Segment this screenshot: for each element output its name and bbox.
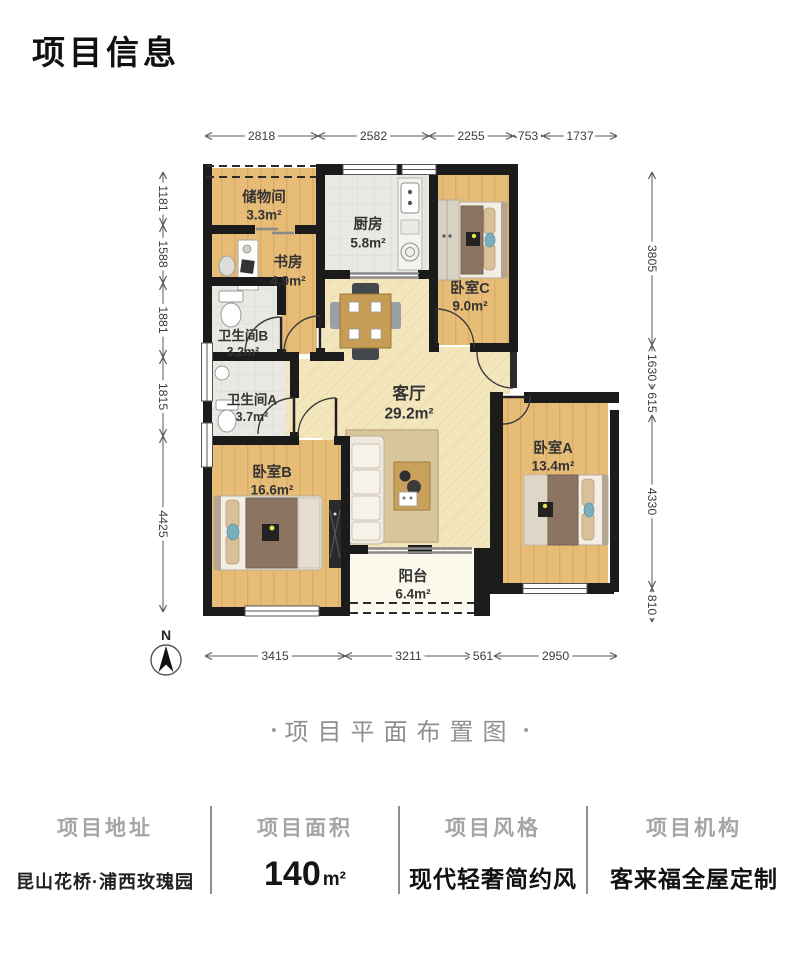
window-kitchen-icon [343, 165, 397, 175]
window-kitchen2-icon [402, 165, 436, 175]
dim-label: 753 [518, 129, 539, 143]
room-label-storage: 储物间 [242, 188, 286, 206]
room-area-living-room: 29.2m² [384, 406, 433, 423]
plan-caption: •项目平面布置图• [0, 712, 800, 747]
room-area-bathroom-b: 3.2m² [227, 345, 260, 359]
svg-text:N: N [161, 627, 171, 643]
dim-label: 1181 [156, 185, 170, 212]
caption-text: 项目平面布置图 [285, 719, 516, 746]
address-value: 昆山花桥·浦西玫瑰园 [16, 868, 194, 894]
floor-plan: N 28182582225575317371181158818811815442… [0, 0, 800, 700]
room-area-study: 4.9m² [270, 274, 306, 289]
address-label: 项目地址 [57, 812, 153, 842]
dim-label: 2255 [457, 129, 485, 143]
room-area-balcony: 6.4m² [395, 587, 431, 602]
style-value: 现代轻奢简约风 [409, 860, 577, 894]
dim-label: 1815 [156, 383, 170, 411]
bed-a-icon [524, 475, 608, 545]
toilet-b-icon [219, 291, 243, 327]
room-label-bedroom-a: 卧室A [533, 439, 573, 457]
dim-label: 1630 [645, 354, 659, 382]
dim-label: 3415 [261, 649, 289, 663]
organization-value: 客来福全屋定制 [610, 860, 778, 894]
area-value: 140m² [264, 855, 346, 894]
room-label-living-room: 客厅 [392, 383, 427, 403]
caption-left-dot: • [271, 722, 276, 739]
floor-plan-container: N 28182582225575317371181158818811815442… [0, 0, 800, 705]
organization-label: 项目机构 [646, 812, 742, 842]
chair-icon [219, 256, 235, 276]
sofa-icon [348, 436, 384, 544]
project-info-bar: 项目地址 昆山花桥·浦西玫瑰园 项目面积 140m² 项目风格 现代轻奢简约风 … [0, 806, 800, 898]
dim-label: 3211 [395, 649, 422, 663]
area-number: 140 [264, 855, 321, 893]
room-area-bedroom-a: 13.4m² [532, 459, 575, 474]
tv-cabinet-icon [329, 500, 341, 568]
info-column-organization: 项目机构 客来福全屋定制 [588, 806, 800, 894]
sink-icon [215, 366, 229, 380]
area-unit: m² [323, 869, 346, 890]
dim-label: 4425 [156, 510, 170, 538]
dim-label: 2818 [248, 129, 276, 143]
dim-label: 3805 [645, 245, 659, 273]
room-label-balcony: 阳台 [399, 567, 428, 585]
dim-label: 561 [473, 649, 494, 663]
room-area-bathroom-a: 3.7m² [236, 410, 269, 424]
info-column-style: 项目风格 现代轻奢简约风 [400, 806, 588, 894]
bed-c-icon [459, 202, 507, 278]
dim-label: 1881 [156, 306, 170, 334]
dim-label: 2950 [542, 649, 570, 663]
room-label-bedroom-b: 卧室B [252, 463, 291, 481]
dining-set-icon [330, 283, 401, 360]
dim-label: 2582 [360, 129, 388, 143]
room-study-nook [281, 283, 317, 354]
dim-label: 615 [645, 392, 659, 413]
room-area-bedroom-c: 9.0m² [452, 299, 488, 314]
room-label-bathroom-b: 卫生间B [218, 328, 268, 344]
dim-label: 810 [645, 595, 659, 616]
kitchen-counter-icon [398, 178, 422, 270]
info-column-area: 项目面积 140m² [212, 806, 400, 894]
dim-label: 4330 [645, 488, 659, 516]
bed-b-icon [214, 496, 322, 570]
area-label: 项目面积 [257, 812, 353, 842]
style-label: 项目风格 [445, 812, 541, 842]
coffee-table-icon [394, 462, 430, 510]
window-bath-a-icon [202, 423, 213, 467]
caption-right-dot: • [524, 722, 529, 739]
window-bath-b-icon [202, 343, 213, 401]
room-area-storage: 3.3m² [246, 208, 282, 223]
room-area-kitchen: 5.8m² [350, 236, 386, 251]
info-column-address: 项目地址 昆山花桥·浦西玫瑰园 [0, 806, 212, 894]
room-label-study: 书房 [274, 253, 303, 271]
window-bedroom-b-icon [245, 606, 319, 616]
dim-label: 1588 [156, 240, 170, 268]
window-bedroom-a-icon [523, 584, 587, 594]
room-label-bathroom-a: 卫生间A [227, 392, 277, 408]
room-area-bedroom-b: 16.6m² [251, 483, 294, 498]
room-living-right [430, 347, 492, 549]
dim-label: 1737 [566, 129, 594, 143]
north-arrow-icon: N [151, 627, 181, 675]
room-label-kitchen: 厨房 [354, 215, 383, 233]
room-label-bedroom-c: 卧室C [450, 279, 490, 297]
